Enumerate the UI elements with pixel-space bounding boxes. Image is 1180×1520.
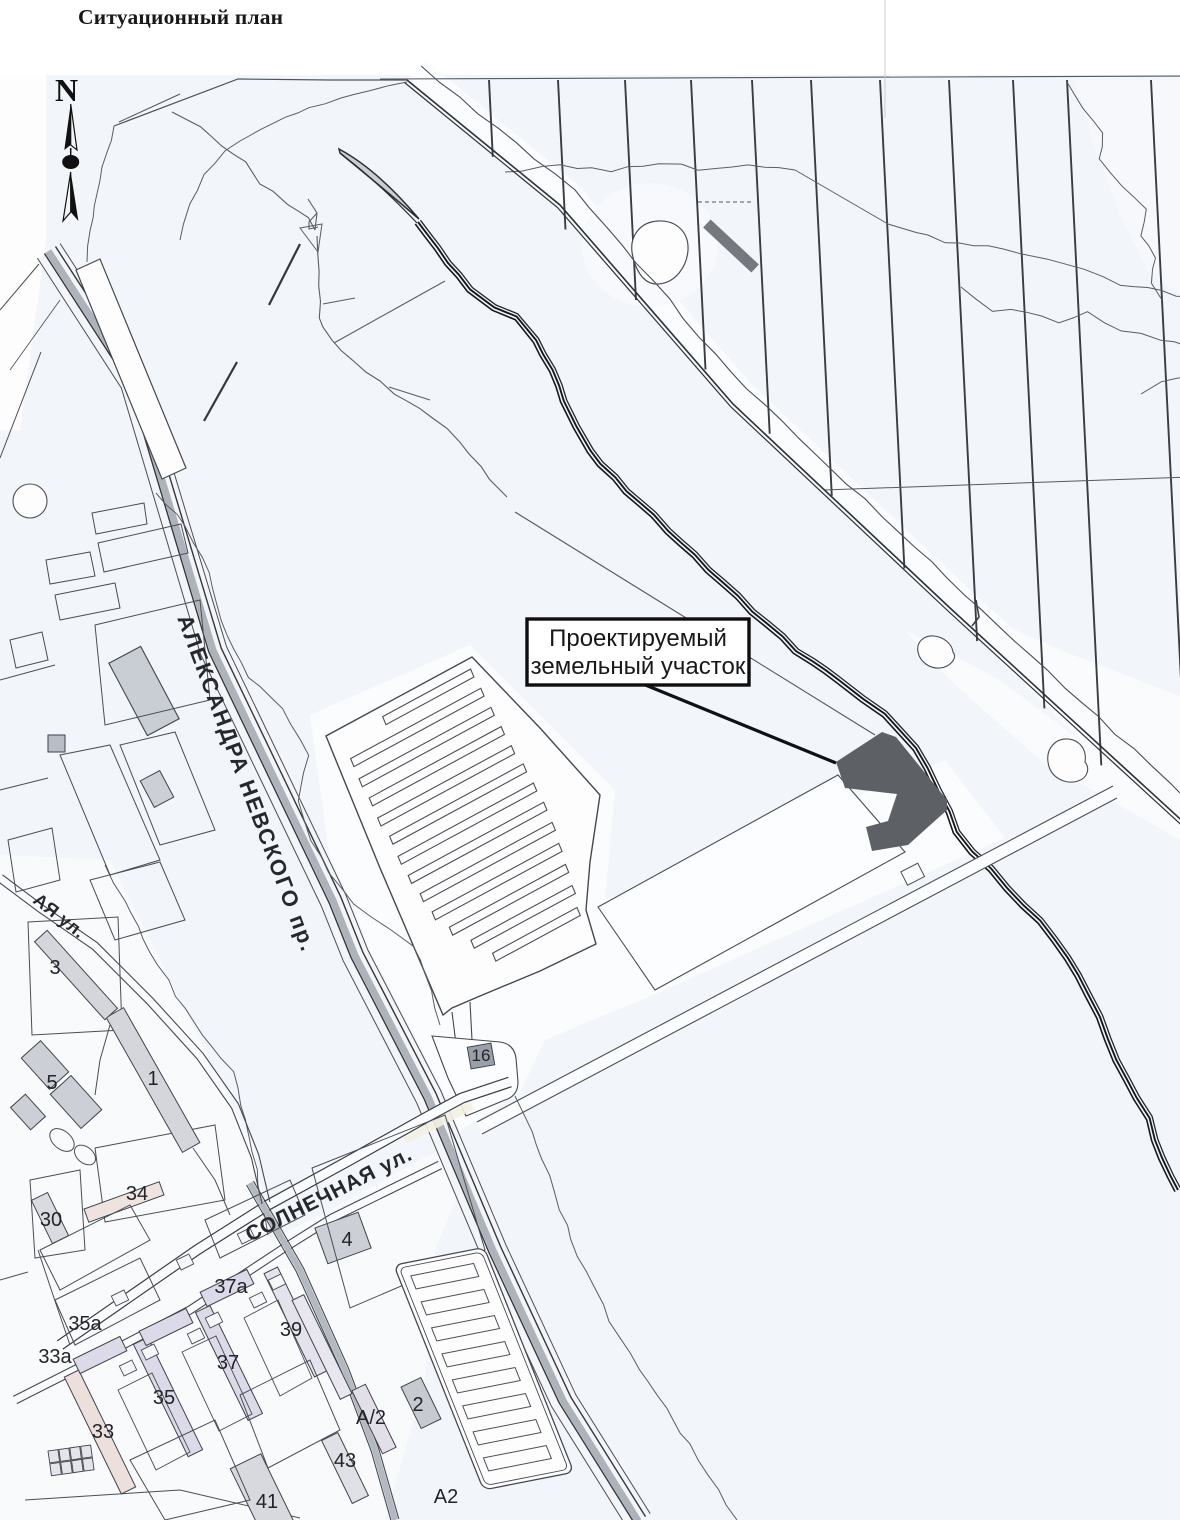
svg-text:4: 4: [341, 1229, 352, 1251]
svg-text:43: 43: [334, 1450, 356, 1472]
svg-text:37а: 37а: [214, 1276, 248, 1298]
svg-text:1: 1: [147, 1068, 158, 1090]
svg-text:34: 34: [126, 1183, 148, 1205]
svg-text:3: 3: [49, 957, 60, 979]
svg-text:Проектируемый: Проектируемый: [549, 625, 727, 652]
svg-text:33а: 33а: [38, 1346, 72, 1368]
svg-text:30: 30: [40, 1209, 62, 1231]
svg-text:5: 5: [46, 1072, 57, 1094]
svg-text:37: 37: [217, 1352, 239, 1374]
svg-text:2: 2: [412, 1394, 423, 1416]
svg-text:35: 35: [153, 1387, 175, 1409]
svg-text:39: 39: [280, 1319, 302, 1341]
svg-text:35а: 35а: [68, 1313, 102, 1335]
svg-text:41: 41: [256, 1491, 278, 1513]
svg-text:А2: А2: [434, 1486, 458, 1508]
svg-text:N: N: [55, 72, 78, 108]
svg-text:33: 33: [92, 1421, 114, 1443]
svg-text:земельный участок: земельный участок: [531, 653, 746, 680]
svg-text:Ситуационный план: Ситуационный план: [78, 5, 283, 29]
svg-text:16: 16: [472, 1046, 491, 1065]
svg-text:А/2: А/2: [356, 1407, 386, 1429]
